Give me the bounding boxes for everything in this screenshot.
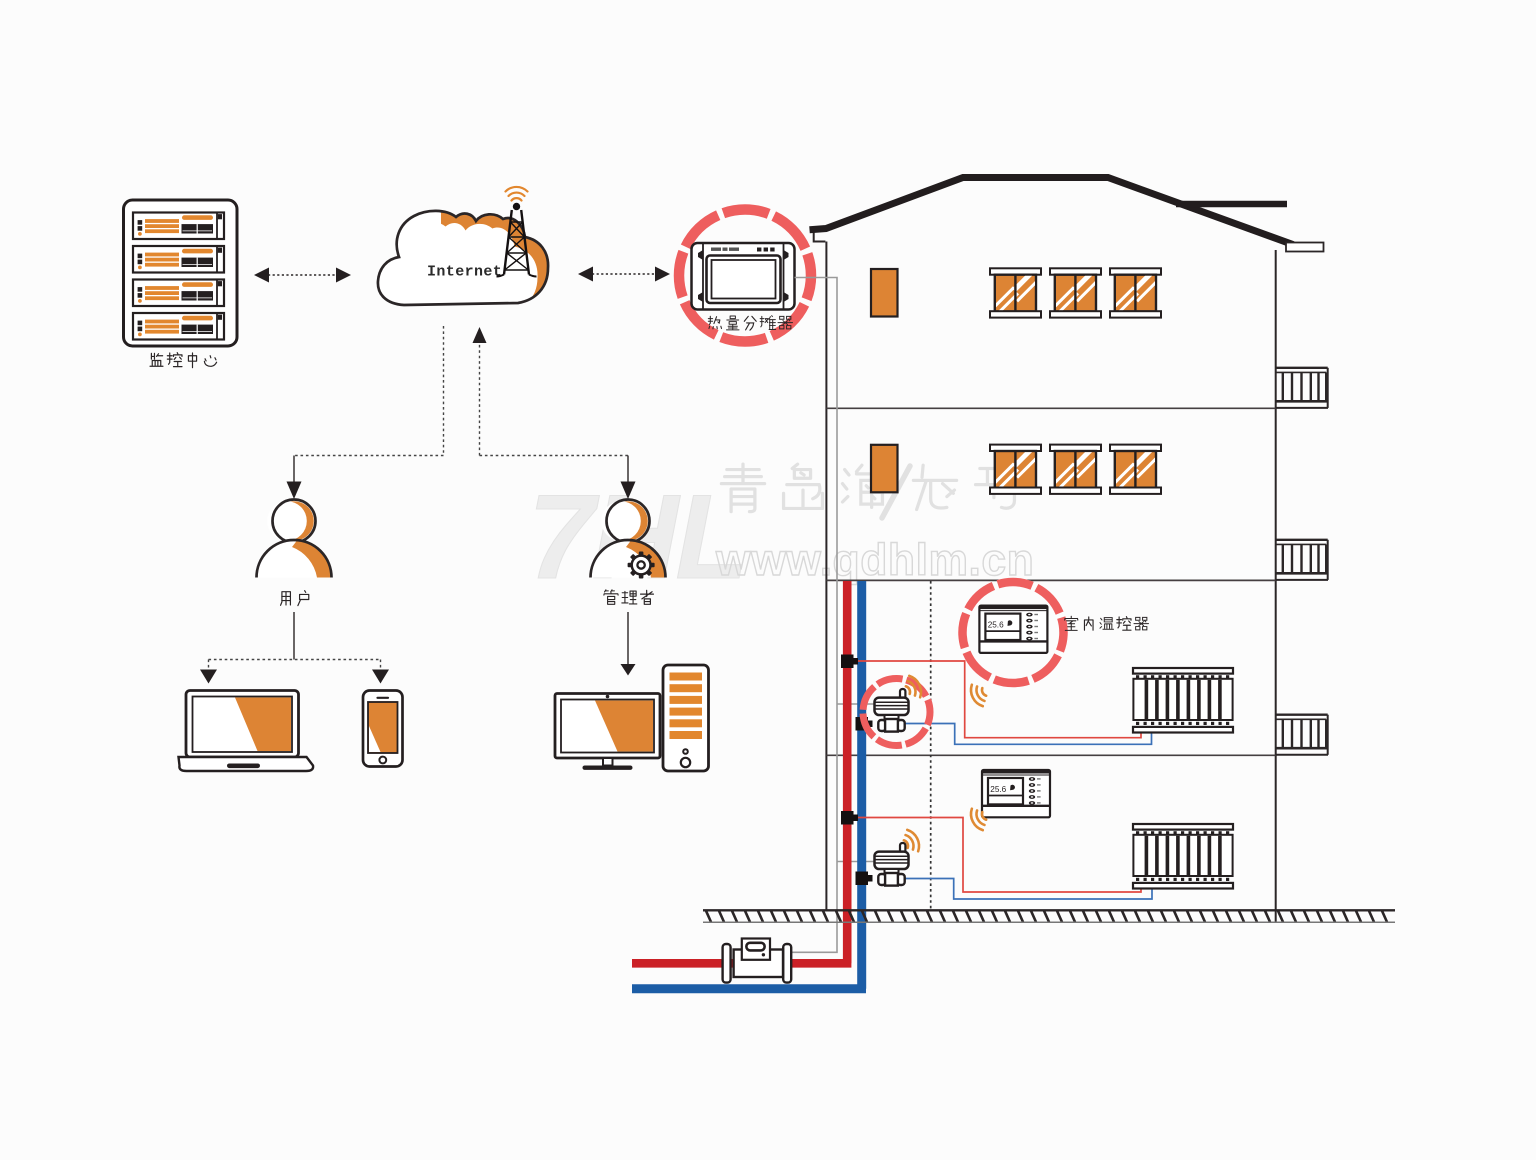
svg-text:www.qdhlm.cn: www.qdhlm.cn [715, 536, 1034, 585]
svg-text:Internet: Internet [427, 264, 502, 281]
